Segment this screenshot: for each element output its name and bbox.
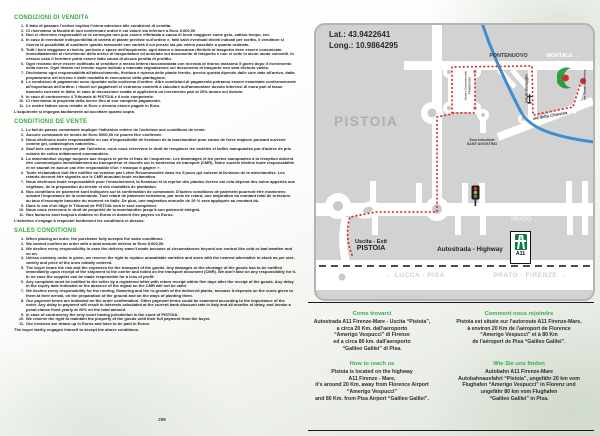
label-autostrada-highway: Autostrada - Highway <box>426 246 514 253</box>
directions-italian: Come trovarci Autostrada A11 Firenze-Mar… <box>308 311 436 352</box>
directions-heading: Wie Sie uns finden <box>444 361 594 367</box>
directions-text-line: Pistoia est située sur l'autoroute A11 F… <box>444 319 594 326</box>
label-prato-firenze-direction: PRATO - FIRENZE → <box>468 272 592 279</box>
condition-item: The buyer bears the risk and the expense… <box>25 266 296 280</box>
divider-line-top <box>308 302 594 303</box>
section-footer: L'acquirente si impegna tacitamente ad a… <box>14 110 296 115</box>
directions-text-line: a circa 20 Km. dall'aeroporto <box>308 326 436 333</box>
location-map: Lat.: 43.9422641 Long.: 10.9864295 PISTO… <box>314 23 595 301</box>
directions-text-line: A11 Firenze - Mare, <box>308 376 436 383</box>
directions-heading: How to reach us <box>308 361 436 367</box>
directions-heading: Come trovarci <box>308 311 436 317</box>
conditions-section-italian: CONDIZIONI DI VENDITA Il fatto di passar… <box>14 15 296 114</box>
conditions-section-english: SALES CONDITIONS When placing an order, … <box>14 228 296 332</box>
section-heading: SALES CONDITIONS <box>14 228 296 235</box>
directions-text-line: “Galileo Galilei” in Pisa. <box>444 396 594 403</box>
label-zona-industriale: Zona Industriale SANT'AGOSTINO <box>456 138 508 146</box>
label-lucca-pisa-direction: ← LUCCA - PISA <box>354 272 476 279</box>
conditions-list: Le fait de passer commande implique l'ad… <box>14 128 296 217</box>
coordinates-box: Lat.: 43.9422641 Long.: 10.9864295 <box>329 30 398 51</box>
directions-english: How to reach us Pistoia is located on th… <box>308 361 436 402</box>
company-logo-marker <box>557 66 575 90</box>
label-centro-commerciale-panorama: Centro Commerciale PANORAMA <box>464 64 471 108</box>
directions-text-line: Autostrada A11 Firenze-Mare - Uscita “Pi… <box>308 319 436 326</box>
directions-text-line: and 80 Km. from Pisa Airport “Galileo Ga… <box>308 396 436 403</box>
city-label-pistoia: PISTOIA <box>334 114 398 129</box>
latitude-value: Lat.: 43.9422641 <box>329 30 398 41</box>
label-pontenuovo: PONTENUOVO <box>481 53 536 59</box>
directions-text-line: à environ 20 Km de l'aéroport de Florenc… <box>444 326 594 333</box>
condition-item: Nos conditions de paiement sont indiquée… <box>25 190 296 204</box>
directions-german: Wie Sie uns finden Autobahn A11 Firenze-… <box>444 361 594 402</box>
traffic-light-icon <box>471 185 480 207</box>
sales-conditions-page: CONDIZIONI DI VENDITA Il fatto di passar… <box>14 15 296 337</box>
directions-text-line: “Amerigo Vespucci” <box>308 389 436 396</box>
condition-item: La marchandise voyage toujours aux risqu… <box>25 157 296 171</box>
directions-french: Comment nous rejoindre Pistoia est situé… <box>444 311 594 352</box>
directions-text-line: it's around 20 Km. away from Florence Ai… <box>308 382 436 389</box>
directions-text-line: ungefähr 80 km vom Flughafen <box>444 389 594 396</box>
conditions-section-french: CONDITIONS DE VENTE Le fait de passer co… <box>14 119 296 223</box>
church-cross-icon <box>526 91 533 101</box>
directions-text-line: “Amerigo Vespucci” et à 80 Km <box>444 332 594 339</box>
condition-item: Le nostre fatture sono redatte in Euro e… <box>25 104 296 109</box>
section-footer: L'acheteur s'engage à respecter taciteme… <box>14 219 296 224</box>
map-roads-graphic <box>316 25 593 299</box>
section-heading: CONDIZIONI DI VENDITA <box>14 15 296 22</box>
directions-text-line: Pistoia is located on the highway <box>308 369 436 376</box>
motorway-icon <box>515 234 527 250</box>
section-footer: The buyer tacitly engages himself to acc… <box>14 328 296 333</box>
background-foliage-watermark <box>0 330 240 436</box>
catalog-spread-page: CONDIZIONI DI VENDITA Il fatto di passar… <box>0 0 600 436</box>
condition-item: Tutti i beni viaggiano a rischio, perico… <box>25 48 296 62</box>
condition-item: Le condizioni di pagamento sono riportat… <box>25 80 296 94</box>
conditions-list: When placing an order, the purchaser ful… <box>14 237 296 326</box>
condition-item: Nos factures sont toujours établies en E… <box>25 213 296 218</box>
directions-text-line: “Amerigo Vespucci” di Firenze <box>308 332 436 339</box>
a11-code: A11 <box>516 251 525 257</box>
divider-line-bottom <box>308 430 594 431</box>
section-heading: CONDITIONS DE VENTE <box>14 119 296 126</box>
condition-item: Our payment terms are indicated on the o… <box>25 299 296 313</box>
directions-section: Come trovarci Autostrada A11 Firenze-Mar… <box>308 302 594 410</box>
label-uscita-exit-pistoia: Uscita - Exit PISTOIA <box>342 239 400 253</box>
conditions-list: Il fatto di passare l'ordine implica l'i… <box>14 24 296 109</box>
a11-highway-sign: A11 <box>510 231 531 264</box>
directions-text-line: Autobahn A11 Firenze-Mare <box>444 369 594 376</box>
directions-text-line: ed a circa 80 km. dall'aeroporto <box>308 339 436 346</box>
directions-text-line: de l'aéroport de Pisa “Galileo Galilei”. <box>444 339 594 346</box>
page-number: 288 <box>150 417 174 422</box>
longitude-value: Long.: 10.9864295 <box>329 41 398 52</box>
label-prato-direction: PRATO → <box>499 217 551 223</box>
directions-heading: Comment nous rejoindre <box>444 311 594 317</box>
directions-text-line: Flughafen “Amerigo Vespucci” in Florenz … <box>444 382 594 389</box>
destination-street-label: via Guado di Chiesina <box>583 65 586 105</box>
directions-text-line: “Galileo Galilei” di Pisa. <box>308 346 436 353</box>
directions-text-line: Autobahnausfahrt “Pistoia”, ungefähr 20 … <box>444 376 594 383</box>
label-montale-direction: MONTALE → <box>537 53 589 59</box>
